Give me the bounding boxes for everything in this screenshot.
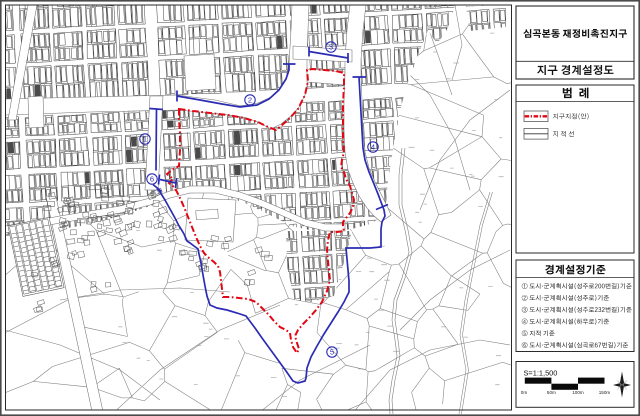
- svg-text:S=1:1,500: S=1:1,500: [524, 369, 558, 378]
- svg-text:0m: 0m: [521, 390, 528, 395]
- svg-text:100m: 100m: [572, 390, 584, 395]
- svg-text:150m: 150m: [599, 390, 611, 395]
- svg-text:50m: 50m: [547, 390, 556, 395]
